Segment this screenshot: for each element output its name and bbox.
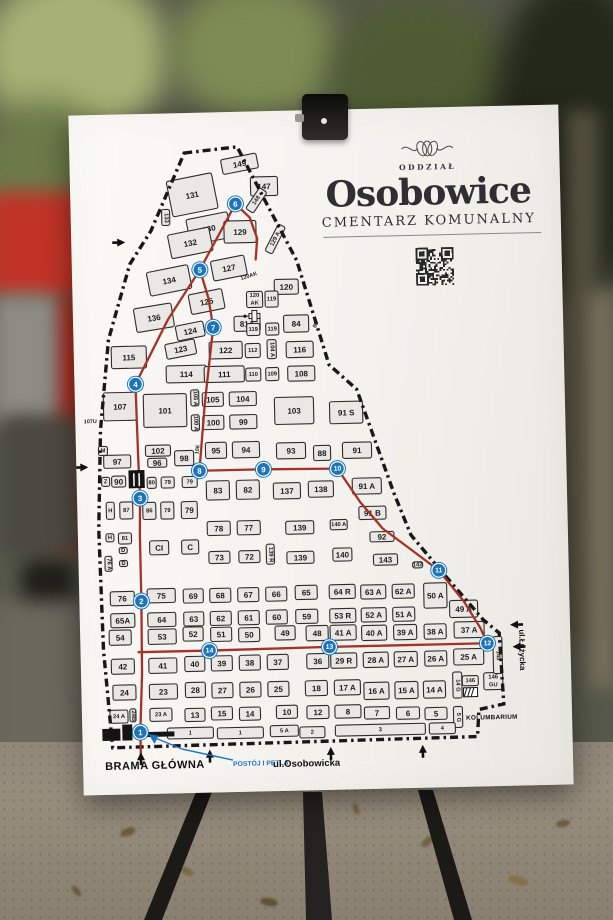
map-section: 51 xyxy=(210,627,231,641)
svg-text:15 A: 15 A xyxy=(398,686,415,695)
svg-text:101: 101 xyxy=(158,406,172,415)
svg-text:36: 36 xyxy=(313,657,323,666)
svg-text:50 A: 50 A xyxy=(427,591,444,600)
svg-text:63 A: 63 A xyxy=(365,588,382,597)
map-section: 3 xyxy=(335,723,425,736)
map-section: 140 A xyxy=(330,519,347,529)
svg-text:100: 100 xyxy=(207,418,221,427)
building xyxy=(122,724,132,740)
svg-text:91 S: 91 S xyxy=(338,408,355,417)
map-section: 120AK xyxy=(246,291,262,307)
map-section: CI xyxy=(150,540,169,554)
map-section: 38 xyxy=(239,655,260,670)
label-main-gate: BRAMA GŁÓWNA xyxy=(105,759,205,773)
map-section: 53 R xyxy=(330,608,356,623)
map-section: H xyxy=(106,534,114,542)
svg-text:16 A: 16 A xyxy=(368,687,385,696)
svg-text:38: 38 xyxy=(245,659,255,668)
svg-text:146: 146 xyxy=(488,674,499,680)
svg-text:129: 129 xyxy=(233,228,247,237)
map-section: 51 A xyxy=(393,607,415,621)
route-stop-5: 5 xyxy=(192,262,208,278)
svg-text:66: 66 xyxy=(272,590,282,599)
map-section: 4 xyxy=(429,723,455,735)
map-section: 41 xyxy=(149,658,177,674)
map-section: D xyxy=(119,547,127,554)
route-stop-8: 8 xyxy=(191,463,207,479)
route-stop-4: 4 xyxy=(127,376,143,392)
svg-text:103: 103 xyxy=(287,406,301,415)
svg-text:H: H xyxy=(108,535,112,541)
map-section: 104 A xyxy=(267,339,276,358)
map-section: 76 xyxy=(110,591,134,606)
map-section: D xyxy=(119,560,127,567)
svg-text:51: 51 xyxy=(217,630,227,639)
svg-text:139: 139 xyxy=(293,523,307,532)
svg-text:14: 14 xyxy=(206,647,214,654)
map-section: 133 xyxy=(162,209,170,225)
map-section: 23 xyxy=(149,684,177,700)
map-section: 12 xyxy=(307,705,329,718)
svg-text:39: 39 xyxy=(217,659,227,668)
map-section: 139 R xyxy=(266,544,274,564)
entrance-arrow-icon xyxy=(419,745,427,758)
svg-text:77: 77 xyxy=(244,524,254,533)
svg-text:41: 41 xyxy=(158,662,168,671)
svg-text:63: 63 xyxy=(189,615,199,624)
svg-text:8: 8 xyxy=(346,707,351,716)
svg-text:139: 139 xyxy=(294,553,308,562)
svg-text:28: 28 xyxy=(191,686,201,695)
map-section: 105 A xyxy=(191,390,199,407)
svg-text:139 R: 139 R xyxy=(267,547,273,563)
map-section: 119 xyxy=(247,323,260,335)
map-section: 146GU xyxy=(484,672,503,689)
svg-text:143: 143 xyxy=(379,555,393,564)
map-section: 64 xyxy=(148,612,176,627)
svg-text:24: 24 xyxy=(120,688,130,697)
map-section: 14 xyxy=(239,707,260,720)
map-section: 119 xyxy=(266,323,279,335)
map-section: 102 xyxy=(145,445,170,457)
map-section: 68 xyxy=(210,588,231,602)
svg-text:7: 7 xyxy=(211,323,216,332)
map-section: 8 xyxy=(335,705,361,719)
svg-text:120: 120 xyxy=(250,293,260,299)
svg-text:24 A: 24 A xyxy=(113,714,126,720)
map-section: 99 xyxy=(230,414,257,429)
svg-text:79: 79 xyxy=(164,480,171,486)
map-section: 79 xyxy=(181,501,197,518)
svg-text:51 A: 51 A xyxy=(395,610,412,619)
map-section: 61 xyxy=(238,610,259,624)
map-section: 80 xyxy=(147,477,156,488)
svg-text:C: C xyxy=(187,543,193,552)
svg-text:39 A: 39 A xyxy=(397,628,414,637)
map-section: 95 xyxy=(205,442,226,458)
map-section: 124 xyxy=(175,321,205,341)
route-stop-9: 9 xyxy=(255,461,271,477)
map-section: 81 xyxy=(118,533,131,544)
map-section: 2 xyxy=(300,726,325,738)
svg-text:90: 90 xyxy=(114,477,124,486)
svg-text:13: 13 xyxy=(326,644,334,651)
svg-text:72: 72 xyxy=(245,553,255,562)
route-stop-13: 13 xyxy=(321,639,337,655)
svg-text:109: 109 xyxy=(267,371,278,377)
svg-text:59: 59 xyxy=(302,612,312,621)
map-section: 37 xyxy=(267,654,288,669)
svg-text:62 A: 62 A xyxy=(395,587,412,596)
svg-text:64: 64 xyxy=(157,616,167,625)
map-section: 38 A xyxy=(424,624,446,639)
map-section: 50 A xyxy=(424,583,448,609)
map-section: 26 xyxy=(240,682,261,697)
road-label: 107U xyxy=(84,419,97,425)
svg-text:88: 88 xyxy=(318,449,328,458)
map-section: 48 xyxy=(306,625,328,640)
map-section: 24 A xyxy=(110,710,128,723)
map-section: 119 xyxy=(265,291,278,307)
svg-text:24B: 24B xyxy=(130,710,136,721)
svg-text:53: 53 xyxy=(158,633,168,642)
svg-text:50: 50 xyxy=(245,631,255,640)
map-section: H xyxy=(106,502,114,519)
svg-text:CI: CI xyxy=(155,544,163,553)
map-section: 40 xyxy=(185,656,205,671)
map-section: 67 xyxy=(238,587,259,601)
svg-text:25 A: 25 A xyxy=(460,653,477,662)
map-section: 53 xyxy=(148,629,176,645)
map-section: 140 xyxy=(333,548,352,561)
svg-text:111: 111 xyxy=(218,370,231,379)
svg-text:80: 80 xyxy=(148,480,155,486)
svg-text:25: 25 xyxy=(274,685,284,694)
map-section: 25 xyxy=(268,681,289,696)
map-section: 139 xyxy=(286,521,314,535)
svg-text:91 A: 91 A xyxy=(358,482,375,491)
svg-text:98: 98 xyxy=(180,454,190,463)
map-section: 116 xyxy=(286,341,313,358)
route-stop-7: 7 xyxy=(205,319,221,335)
map-section: 149 xyxy=(220,153,258,175)
svg-text:2: 2 xyxy=(311,730,314,736)
map-section: 10 xyxy=(276,705,297,718)
map-section: 24B xyxy=(130,709,136,722)
map-section: 1 xyxy=(217,727,263,739)
svg-text:122: 122 xyxy=(219,346,233,355)
map-section: 60 xyxy=(266,610,287,624)
map-section: 122 xyxy=(209,341,242,359)
map-section: 139 xyxy=(287,551,314,564)
map-section: 37 A xyxy=(454,621,484,638)
map-section: 132 xyxy=(167,227,213,259)
easel-leg xyxy=(303,792,332,920)
svg-text:AK: AK xyxy=(250,301,259,307)
svg-text:112: 112 xyxy=(248,348,257,354)
svg-text:104 A: 104 A xyxy=(269,342,275,358)
svg-text:137: 137 xyxy=(280,487,294,496)
map-section: 107 xyxy=(103,392,137,421)
entrance-arrow-icon xyxy=(112,238,125,246)
svg-text:49: 49 xyxy=(281,629,291,638)
map-section: 101 xyxy=(143,394,187,428)
svg-text:23: 23 xyxy=(159,688,169,697)
svg-text:65: 65 xyxy=(302,588,312,597)
svg-text:95: 95 xyxy=(211,446,221,455)
svg-text:75: 75 xyxy=(157,592,167,601)
board-clip xyxy=(302,94,348,140)
map-section: 65 xyxy=(295,585,317,599)
svg-text:105: 105 xyxy=(206,395,220,404)
svg-text:108: 108 xyxy=(294,369,308,378)
map-section: 78 xyxy=(207,521,230,536)
svg-text:69: 69 xyxy=(189,592,199,601)
map-section: 69 xyxy=(183,589,203,603)
map-section: 100 xyxy=(203,415,224,429)
svg-text:D: D xyxy=(121,548,125,554)
svg-text:78: 78 xyxy=(214,524,224,533)
map-section: 52 xyxy=(183,627,203,641)
svg-text:140 A: 140 A xyxy=(331,522,347,528)
svg-text:96: 96 xyxy=(153,459,163,468)
svg-text:Z: Z xyxy=(104,479,108,485)
map-section: 29 R xyxy=(331,653,357,669)
map-section: 54 xyxy=(109,630,131,645)
svg-text:23 A: 23 A xyxy=(155,712,168,718)
svg-text:138: 138 xyxy=(314,485,328,494)
map-section: 75 xyxy=(147,588,175,603)
svg-text:28 A: 28 A xyxy=(367,656,384,665)
svg-text:79: 79 xyxy=(186,479,193,485)
clip-hinge xyxy=(295,114,304,122)
svg-text:99: 99 xyxy=(239,418,249,427)
map-section: 27 A xyxy=(394,651,417,667)
svg-text:81: 81 xyxy=(122,536,129,542)
svg-text:10: 10 xyxy=(334,466,342,473)
svg-text:92: 92 xyxy=(377,533,387,542)
svg-text:65A: 65A xyxy=(115,616,130,625)
svg-text:26 A: 26 A xyxy=(427,654,444,663)
map-section: C xyxy=(182,540,199,554)
map-section: 63 A xyxy=(361,585,386,600)
svg-text:100 A: 100 A xyxy=(192,416,198,432)
map-section: 87 xyxy=(120,502,133,519)
map-section: 5 xyxy=(425,707,447,719)
svg-text:10: 10 xyxy=(282,708,292,717)
route-stop-6: 6 xyxy=(227,196,243,212)
svg-text:91: 91 xyxy=(352,446,362,455)
map-section: 59 xyxy=(296,609,318,623)
map-section: 77 xyxy=(237,520,260,535)
map-section: 14 G xyxy=(453,672,463,698)
svg-text:67: 67 xyxy=(244,591,254,600)
map-section: 104 xyxy=(229,391,256,406)
svg-text:115: 115 xyxy=(122,353,136,362)
map-section: 100 A xyxy=(191,415,199,432)
svg-text:48: 48 xyxy=(313,629,323,638)
svg-text:D: D xyxy=(121,561,125,567)
svg-text:93: 93 xyxy=(286,447,296,456)
building xyxy=(102,729,120,741)
svg-text:13: 13 xyxy=(190,711,200,720)
svg-text:87: 87 xyxy=(123,508,130,514)
map-section: 15 xyxy=(211,707,232,720)
svg-text:73: 73 xyxy=(215,553,225,562)
map-section: 103 xyxy=(274,397,314,425)
svg-text:62: 62 xyxy=(216,614,226,623)
svg-text:76: 76 xyxy=(118,594,128,603)
map-section: 18 xyxy=(305,680,327,695)
map-section: 110 xyxy=(246,368,261,381)
cemetery-map: 149147131148130129129 A13213312713412513… xyxy=(68,105,573,796)
map-section: 42 xyxy=(111,659,134,675)
svg-text:40: 40 xyxy=(190,660,200,669)
svg-text:14: 14 xyxy=(245,710,255,719)
map-section: 52 A xyxy=(361,608,386,623)
route-stop-14: 14 xyxy=(201,642,217,658)
map-section: 28 xyxy=(185,682,205,697)
route-stop-12: 12 xyxy=(479,635,495,651)
map-section: 91 A xyxy=(352,478,381,495)
svg-text:86: 86 xyxy=(146,508,153,514)
svg-text:119: 119 xyxy=(249,327,259,333)
svg-text:H: H xyxy=(108,508,112,514)
svg-text:119: 119 xyxy=(268,326,278,332)
map-section: 96 xyxy=(148,458,167,468)
map-section: 63 xyxy=(184,612,204,626)
map-section: 91 S xyxy=(329,401,362,424)
svg-text:142: 142 xyxy=(413,562,423,568)
svg-text:5: 5 xyxy=(434,709,439,718)
map-section: 14 A xyxy=(423,681,445,698)
map-section: 23 A xyxy=(150,708,172,721)
map-section: 49 xyxy=(275,626,295,640)
svg-text:82: 82 xyxy=(243,486,253,495)
map-section: 129 A xyxy=(265,224,286,254)
map-section: 5 A xyxy=(270,725,298,737)
clip-screw xyxy=(321,118,327,124)
map-section: 115 xyxy=(111,346,146,369)
map-section: 26 A xyxy=(425,651,447,666)
gate-building xyxy=(128,470,144,488)
svg-text:146: 146 xyxy=(465,678,476,684)
kolumbarium-building xyxy=(463,688,477,697)
route-stop-11: 11 xyxy=(431,562,447,578)
map-section: 39 A xyxy=(393,624,416,640)
map-section: 93 xyxy=(276,442,305,459)
map-section: Z xyxy=(102,477,110,486)
svg-text:17 A: 17 A xyxy=(339,683,356,692)
map-section: 137 xyxy=(273,482,300,499)
svg-text:76 A: 76 A xyxy=(105,558,111,571)
map-section: 62 xyxy=(210,611,231,625)
svg-text:52: 52 xyxy=(189,630,199,639)
map-section: 16 A xyxy=(364,682,389,700)
svg-text:83: 83 xyxy=(213,486,223,495)
photo-scene: ODDZIAŁ Osobowice CMENTARZ KOMUNALNY 149… xyxy=(0,0,613,920)
svg-text:64 R: 64 R xyxy=(334,587,351,596)
map-section: 41 A xyxy=(330,625,356,641)
map-section: 7 xyxy=(364,707,389,720)
map-section: 111 xyxy=(204,366,244,383)
map-section: 114 xyxy=(166,365,206,383)
map-section: 62 A xyxy=(392,584,414,598)
svg-text:12: 12 xyxy=(484,640,492,647)
svg-text:110: 110 xyxy=(249,372,258,378)
route-stop-10: 10 xyxy=(329,460,345,476)
map-section: 138 xyxy=(308,481,333,498)
svg-text:105 A: 105 A xyxy=(192,391,198,407)
map-section: 84 xyxy=(283,315,308,333)
svg-text:79: 79 xyxy=(164,508,171,514)
map-section: 24 xyxy=(113,685,136,701)
svg-text:61: 61 xyxy=(244,614,254,623)
svg-text:116: 116 xyxy=(293,345,307,354)
svg-text:97: 97 xyxy=(113,458,123,467)
svg-text:5 G: 5 G xyxy=(455,713,461,723)
svg-text:27 A: 27 A xyxy=(397,655,414,664)
svg-text:53 R: 53 R xyxy=(334,611,351,620)
svg-text:41 A: 41 A xyxy=(335,628,352,637)
map-section: 28 A xyxy=(363,652,388,668)
svg-text:120: 120 xyxy=(280,283,294,292)
svg-text:26: 26 xyxy=(246,686,256,695)
map-section: 90 xyxy=(112,476,126,487)
map-section: 64 R xyxy=(329,584,355,599)
svg-text:GU: GU xyxy=(489,682,498,688)
map-section: 82 xyxy=(236,480,259,500)
map-section: 40 A xyxy=(361,625,386,641)
map-section: 39 xyxy=(211,656,232,671)
svg-text:12: 12 xyxy=(313,708,323,717)
route-stop-3: 3 xyxy=(132,490,148,506)
svg-text:60: 60 xyxy=(272,613,282,622)
svg-text:5 A: 5 A xyxy=(280,728,290,734)
map-section: 83 xyxy=(206,481,229,501)
map-section: 88 xyxy=(313,445,330,460)
svg-text:104: 104 xyxy=(236,395,250,404)
map-section: 94 xyxy=(232,441,259,458)
svg-text:107: 107 xyxy=(113,402,127,411)
route-stop-1: 1 xyxy=(132,724,148,740)
route-stop-2: 2 xyxy=(133,593,149,609)
map-section: 112 xyxy=(245,343,260,357)
svg-text:37: 37 xyxy=(273,658,283,667)
entrance-arrow-icon xyxy=(510,620,523,628)
svg-text:52 A: 52 A xyxy=(365,611,382,620)
svg-text:6: 6 xyxy=(406,709,411,718)
map-section: 123 xyxy=(164,339,196,360)
map-section: 25 A xyxy=(454,648,484,665)
label-street-luzycka: ul.Łużycka xyxy=(517,629,527,689)
map-section: 65A xyxy=(111,613,135,628)
map-section: 13 xyxy=(185,708,205,721)
svg-text:37 A: 37 A xyxy=(461,625,478,634)
map-board: ODDZIAŁ Osobowice CMENTARZ KOMUNALNY 149… xyxy=(68,105,573,796)
map-section: 76 A xyxy=(105,556,112,571)
map-section: 50 xyxy=(239,627,260,641)
svg-text:114: 114 xyxy=(180,370,194,379)
map-section: 17 A xyxy=(334,680,360,696)
svg-text:14 A: 14 A xyxy=(426,685,443,694)
svg-text:79: 79 xyxy=(185,506,195,515)
svg-text:94: 94 xyxy=(241,446,251,455)
map-section: 91 xyxy=(342,442,371,459)
svg-text:42: 42 xyxy=(118,662,128,671)
map-section: 36 xyxy=(307,653,329,668)
svg-text:119: 119 xyxy=(267,296,277,302)
